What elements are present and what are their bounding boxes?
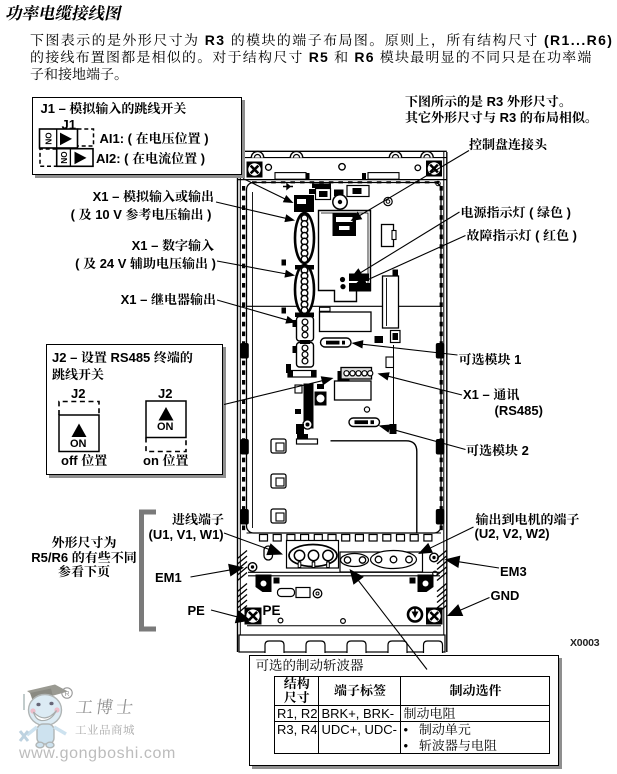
svg-text:ON: ON xyxy=(59,151,68,163)
svg-text:ON: ON xyxy=(44,132,53,144)
